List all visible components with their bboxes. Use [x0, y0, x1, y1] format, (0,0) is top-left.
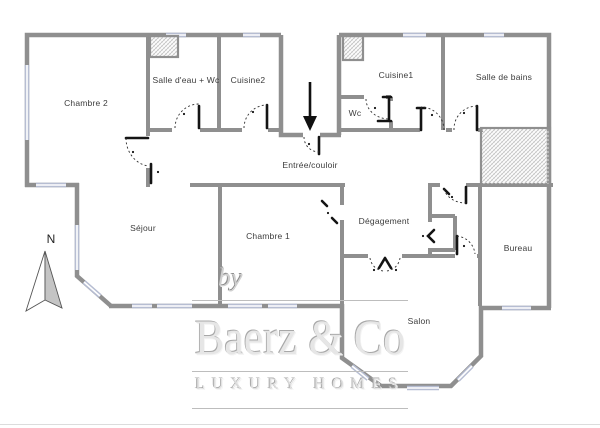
room-label-chambre1: Chambre 1: [246, 231, 290, 241]
room-label-salle-deau: Salle d'eau + Wc: [153, 75, 220, 85]
room-label-chambre2: Chambre 2: [64, 98, 108, 108]
watermark-rule-middle: [192, 371, 408, 372]
shaft-hatch-small-mid: [343, 36, 363, 60]
room-label-salon: Salon: [408, 316, 431, 326]
exterior-walls: [25, 35, 551, 386]
shaft-hatch-large: [481, 128, 550, 185]
room-label-cuisine1: Cuisine1: [379, 70, 414, 80]
entrance-arrow-icon: [303, 82, 317, 131]
room-label-salle-de-bains: Salle de bains: [476, 72, 532, 82]
room-label-degagement: Dégagement: [359, 216, 410, 226]
watermark-rule-bottom: [192, 408, 408, 409]
shaft-hatch-small-left: [150, 36, 178, 57]
room-label-bureau: Bureau: [504, 243, 533, 253]
room-label-entree: Entrée/couloir: [282, 160, 337, 170]
floor-plan-drawing: [0, 0, 600, 428]
floor-plan-page: Chambre 2 Salle d'eau + Wc Cuisine2 Cuis…: [0, 0, 600, 428]
room-label-sejour: Séjour: [130, 223, 156, 233]
room-label-cuisine2: Cuisine2: [231, 75, 266, 85]
room-label-wc: Wc: [349, 108, 362, 118]
compass-north-label: N: [47, 232, 56, 246]
watermark-rule-top: [192, 300, 408, 301]
page-bottom-rule: [0, 424, 600, 425]
compass-icon: [26, 251, 62, 311]
